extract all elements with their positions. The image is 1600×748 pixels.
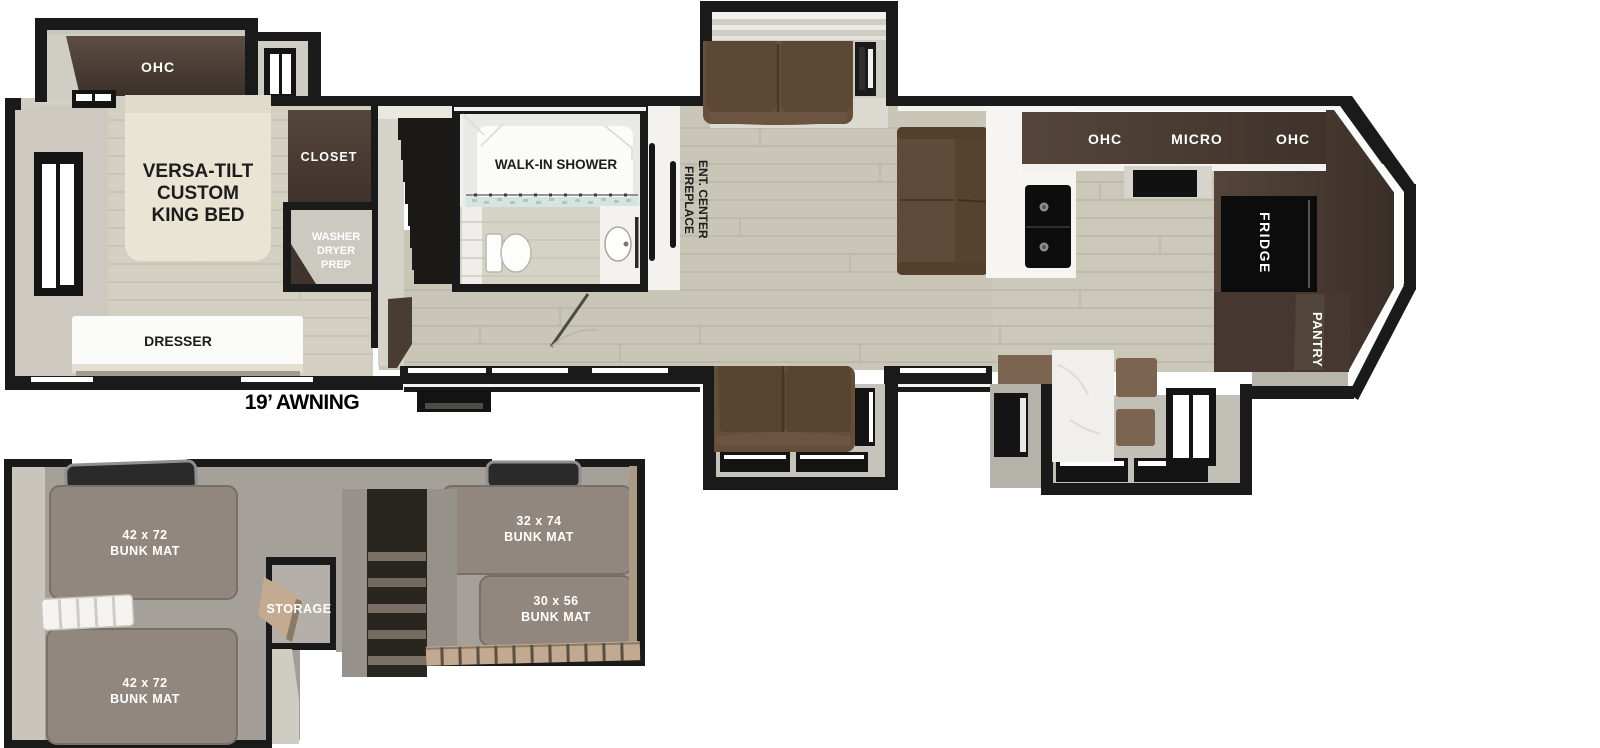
svg-text:KING BED: KING BED: [152, 205, 245, 226]
svg-text:CLOSET: CLOSET: [301, 150, 358, 164]
svg-text:42 x 72: 42 x 72: [122, 528, 167, 542]
svg-text:STORAGE: STORAGE: [266, 602, 331, 616]
svg-text:BUNK MAT: BUNK MAT: [110, 692, 180, 706]
svg-text:WALK-IN SHOWER: WALK-IN SHOWER: [495, 157, 617, 172]
svg-text:OHC: OHC: [1088, 131, 1122, 147]
svg-text:DRESSER: DRESSER: [144, 333, 212, 349]
svg-text:WASHER: WASHER: [312, 231, 360, 243]
svg-text:32 x 74: 32 x 74: [516, 514, 561, 528]
svg-text:BUNK MAT: BUNK MAT: [504, 530, 574, 544]
svg-text:CUSTOM: CUSTOM: [157, 183, 239, 204]
svg-text:PREP: PREP: [321, 259, 351, 271]
svg-text:FIREPLACE: FIREPLACE: [682, 166, 696, 234]
svg-text:19’ AWNING: 19’ AWNING: [245, 391, 360, 414]
svg-text:OHC: OHC: [141, 59, 175, 75]
svg-text:VERSA-TILT: VERSA-TILT: [143, 161, 254, 182]
svg-text:BUNK MAT: BUNK MAT: [110, 544, 180, 558]
svg-text:BUNK MAT: BUNK MAT: [521, 610, 591, 624]
svg-text:PANTRY: PANTRY: [1310, 312, 1325, 367]
svg-text:30 x 56: 30 x 56: [533, 594, 578, 608]
svg-text:ENT. CENTER: ENT. CENTER: [696, 160, 710, 239]
svg-text:FRIDGE: FRIDGE: [1257, 212, 1273, 274]
svg-text:42 x 72: 42 x 72: [122, 676, 167, 690]
svg-text:MICRO: MICRO: [1171, 131, 1223, 147]
svg-text:DRYER: DRYER: [317, 245, 355, 257]
svg-text:OHC: OHC: [1276, 131, 1310, 147]
